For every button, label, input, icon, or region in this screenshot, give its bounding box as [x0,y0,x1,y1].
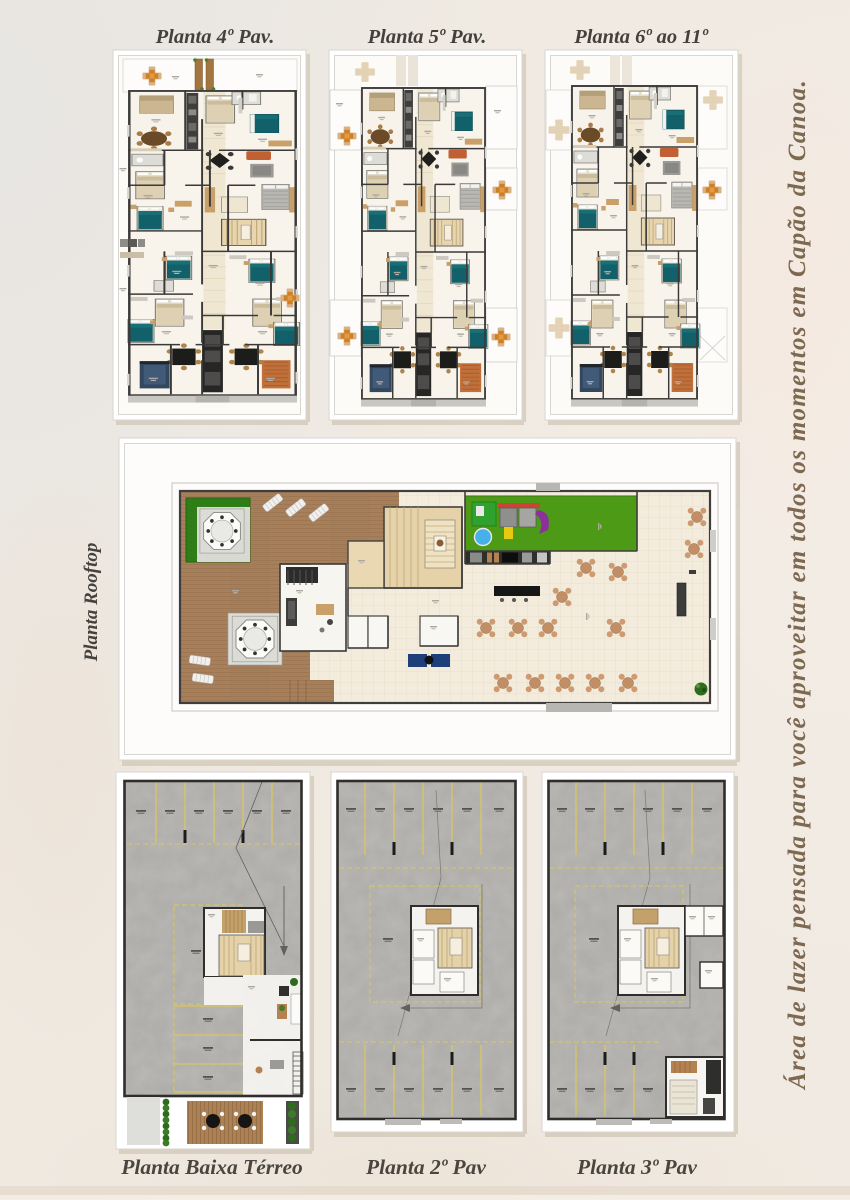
svg-text:Planta 2º Pav: Planta 2º Pav [365,1155,486,1179]
svg-text:Planta 6º ao 11º: Planta 6º ao 11º [573,26,708,48]
svg-text:Área de lazer pensada para voc: Área de lazer pensada para você aproveit… [783,79,811,1091]
svg-text:Planta 4º Pav.: Planta 4º Pav. [155,26,275,48]
svg-text:Planta 3º Pav: Planta 3º Pav [576,1155,697,1179]
svg-text:Planta Rooftop: Planta Rooftop [81,543,102,663]
svg-text:Planta 5º Pav.: Planta 5º Pav. [367,26,487,48]
svg-text:Planta Baixa Térreo: Planta Baixa Térreo [120,1155,303,1179]
